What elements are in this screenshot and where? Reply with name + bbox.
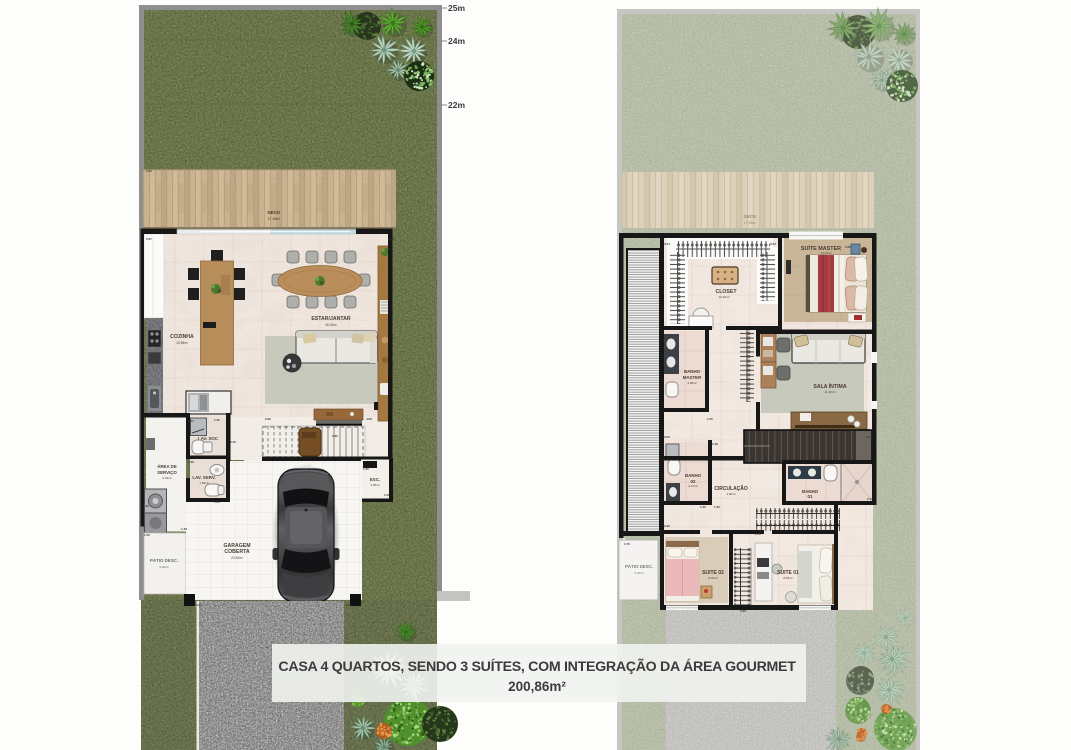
svg-text:20.52m²: 20.52m² [231,556,243,560]
svg-text:ESTAR/JANTAR: ESTAR/JANTAR [311,316,351,322]
svg-text:4.05m²: 4.05m² [687,381,696,385]
svg-text:2.71: 2.71 [867,497,873,501]
svg-text:3.54: 3.54 [664,242,670,246]
svg-text:5.94: 5.94 [196,603,202,607]
svg-text:3.54: 3.54 [770,242,776,246]
svg-text:2.60: 2.60 [740,609,746,613]
svg-text:BANHO: BANHO [685,473,702,478]
svg-text:1.70: 1.70 [624,542,630,546]
svg-text:2.60: 2.60 [265,417,271,421]
svg-text:12.26m²: 12.26m² [718,295,729,299]
svg-text:SALA ÍNTIMA: SALA ÍNTIMA [813,382,846,390]
svg-text:0.34: 0.34 [146,169,152,173]
svg-text:200,86m²: 200,86m² [508,679,566,694]
svg-text:COZINHA: COZINHA [170,334,194,340]
svg-text:0.90: 0.90 [664,524,670,528]
svg-text:1.39: 1.39 [712,442,718,446]
svg-text:13.46m²: 13.46m² [820,251,831,255]
svg-text:01: 01 [808,494,813,499]
svg-text:17.45m²: 17.45m² [268,217,281,221]
svg-text:2.47m²: 2.47m² [688,484,697,488]
svg-text:3.00: 3.00 [664,435,670,439]
svg-text:17.45m²: 17.45m² [744,221,757,225]
svg-text:PÁTIO DESC.: PÁTIO DESC. [150,558,178,563]
svg-text:MASTER: MASTER [683,375,702,380]
svg-text:1.30: 1.30 [714,505,720,509]
svg-text:8.34m²: 8.34m² [708,576,717,580]
svg-text:11.46m²: 11.46m² [825,390,836,394]
svg-text:1.20: 1.20 [700,505,706,509]
svg-text:1.30: 1.30 [143,504,149,508]
svg-text:22m: 22m [448,100,465,110]
svg-text:2.01: 2.01 [755,532,761,536]
svg-text:5.00m²: 5.00m² [159,565,168,569]
svg-text:DECK: DECK [743,214,757,219]
svg-text:1.09: 1.09 [384,493,390,497]
svg-text:1.30: 1.30 [666,333,672,337]
svg-text:CIRCULAÇÃO: CIRCULAÇÃO [714,485,748,492]
svg-text:1.20: 1.20 [214,418,220,422]
svg-text:4.90m²: 4.90m² [726,492,735,496]
svg-text:1.35m²: 1.35m² [370,483,379,487]
svg-text:ÁREA DE: ÁREA DE [157,464,177,469]
svg-text:0.05: 0.05 [389,237,395,241]
svg-text:1.25: 1.25 [363,467,369,471]
svg-text:4.32m²: 4.32m² [162,476,171,480]
svg-text:4.40: 4.40 [345,603,351,607]
svg-text:CASA 4 QUARTOS, SENDO 3 SUÍTES: CASA 4 QUARTOS, SENDO 3 SUÍTES, COM INTE… [278,657,796,675]
svg-text:5.07: 5.07 [146,237,152,241]
svg-text:DECK: DECK [267,210,281,215]
svg-text:LAV. SERV.: LAV. SERV. [192,475,215,480]
svg-text:25m: 25m [448,3,465,13]
svg-text:0.99: 0.99 [332,434,338,438]
svg-text:1.55: 1.55 [707,417,713,421]
svg-text:PÁTIO DESC.: PÁTIO DESC. [625,564,653,569]
svg-text:COBERTA: COBERTA [224,549,250,555]
svg-text:1.52: 1.52 [144,533,150,537]
svg-text:24m: 24m [448,36,465,46]
svg-text:8.87m²: 8.87m² [783,576,792,580]
svg-text:SERVIÇO: SERVIÇO [157,470,177,475]
svg-text:10.95m²: 10.95m² [176,341,188,345]
svg-text:1.48: 1.48 [181,527,187,531]
svg-text:4.08: 4.08 [366,417,372,421]
svg-text:4.24: 4.24 [866,435,872,439]
svg-text:1.07: 1.07 [188,419,194,423]
svg-text:ESC.: ESC. [370,477,380,482]
svg-text:1.26: 1.26 [188,460,194,464]
svg-text:0.80: 0.80 [845,245,851,249]
svg-text:BANHO: BANHO [684,369,701,374]
svg-text:1.20: 1.20 [214,500,220,504]
svg-text:40.00m²: 40.00m² [325,323,337,327]
svg-text:5.00m²: 5.00m² [634,571,643,575]
svg-text:2.40: 2.40 [230,440,236,444]
